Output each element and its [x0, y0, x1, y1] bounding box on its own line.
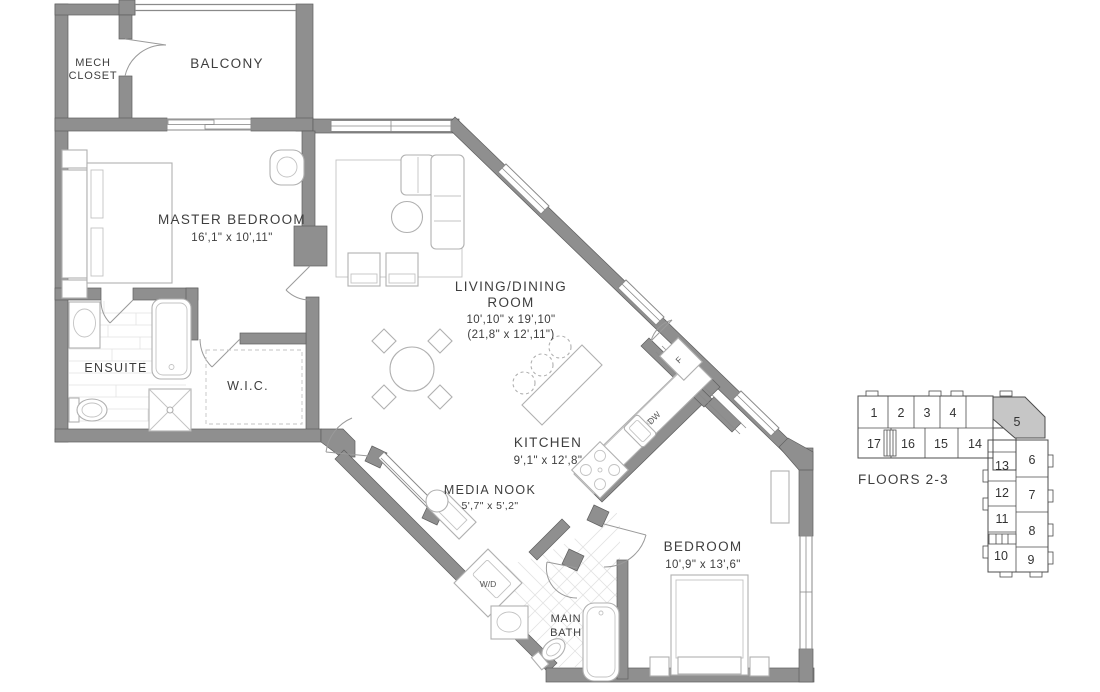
label-living-dining: ROOM: [487, 295, 534, 310]
keyplan-title: FLOORS 2-3: [858, 472, 949, 487]
keyplan-unit: 3: [924, 406, 931, 420]
label-master-bedroom: MASTER BEDROOM: [158, 212, 306, 227]
bed: [650, 575, 769, 676]
nightstand: [750, 657, 769, 676]
label-main-bath: MAIN: [551, 613, 582, 625]
wall: [296, 4, 313, 131]
accent-chair: [270, 150, 304, 185]
door-swing: [546, 562, 577, 598]
keyplan-unit: 17: [867, 437, 881, 451]
bar-stool: [531, 354, 553, 376]
kitchen-island: [513, 336, 602, 425]
floorplan-page: MECH CLOSET BALCONY MASTER BEDROOM 16',1…: [0, 0, 1100, 692]
dresser: [771, 471, 789, 523]
label-wic: W.I.C.: [227, 379, 269, 393]
keyplan-unit: 13: [995, 459, 1009, 473]
label-mech-closet: MECH: [75, 57, 111, 69]
wall: [529, 519, 570, 560]
keyplan-unit: 4: [950, 406, 957, 420]
master-bed: [62, 150, 172, 298]
bathtub: [583, 603, 619, 681]
door-swing: [125, 39, 166, 76]
keyplan-unit: 7: [1029, 488, 1036, 502]
keyplan-unit: 11: [996, 512, 1009, 526]
label-living-dining: LIVING/DINING: [455, 279, 567, 294]
ensuite-vanity-sink: [69, 302, 100, 348]
dims-media-nook: 5',7" x 5',2": [462, 500, 519, 512]
keyplan-unit: 8: [1029, 524, 1036, 538]
wall: [251, 118, 313, 131]
wall: [119, 0, 135, 15]
keyplan-unit: 2: [898, 406, 905, 420]
lounge-chair: [386, 253, 418, 286]
shower: [149, 389, 191, 431]
wall: [119, 15, 132, 39]
dims-living-dining-alt: (21,8" x 12',11"): [467, 329, 554, 341]
lounge-chair: [348, 253, 380, 286]
door-swing: [286, 266, 310, 300]
keyplan-unit: 14: [968, 437, 982, 451]
keyplan-unit: 10: [994, 549, 1008, 563]
wall: [306, 297, 319, 431]
bathtub: [152, 299, 191, 379]
bath-vanity-sink: [491, 606, 528, 639]
keyplan-unit: 15: [934, 437, 948, 451]
dims-bedroom: 10',9" x 13',6": [665, 559, 740, 571]
wall: [240, 333, 306, 344]
label-washer-dryer: W/D: [480, 579, 497, 589]
keyplan-unit-highlighted: 5: [1014, 415, 1021, 429]
keyplan-unit: 16: [901, 437, 915, 451]
unit-floorplan: MECH CLOSET BALCONY MASTER BEDROOM 16',1…: [0, 0, 1100, 692]
toilet: [69, 398, 107, 422]
keyplan-unit: 6: [1029, 453, 1036, 467]
wall-stub: [587, 505, 609, 527]
bar-stool: [513, 372, 535, 394]
nightstand: [650, 657, 669, 676]
label-main-bath: BATH: [550, 627, 582, 639]
label-balcony: BALCONY: [190, 56, 264, 71]
label-mech-closet: CLOSET: [69, 70, 118, 82]
wall: [294, 226, 327, 266]
label-kitchen: KITCHEN: [514, 435, 582, 450]
dining-table: [372, 329, 452, 409]
keyplan-unit: 1: [871, 406, 878, 420]
dims-living-dining: 10',10" x 19',10": [466, 314, 555, 326]
wall: [779, 438, 813, 470]
label-bedroom: BEDROOM: [664, 539, 743, 554]
door-swing: [101, 300, 133, 323]
key-plan: 1 2 3 4 5 17 16 15 14 13 6 12 7 11 8 10 …: [858, 391, 1053, 577]
label-media-nook: MEDIA NOOK: [444, 483, 536, 497]
dims-kitchen: 9',1" x 12',8": [514, 455, 583, 467]
label-ensuite: ENSUITE: [84, 361, 147, 375]
wall: [55, 118, 167, 131]
dims-master-bedroom: 16',1" x 10',11": [191, 232, 272, 244]
keyplan-unit: 12: [995, 486, 1009, 500]
coffee-table: [392, 202, 423, 233]
wall: [799, 649, 813, 682]
keyplan-unit: 9: [1028, 553, 1035, 567]
